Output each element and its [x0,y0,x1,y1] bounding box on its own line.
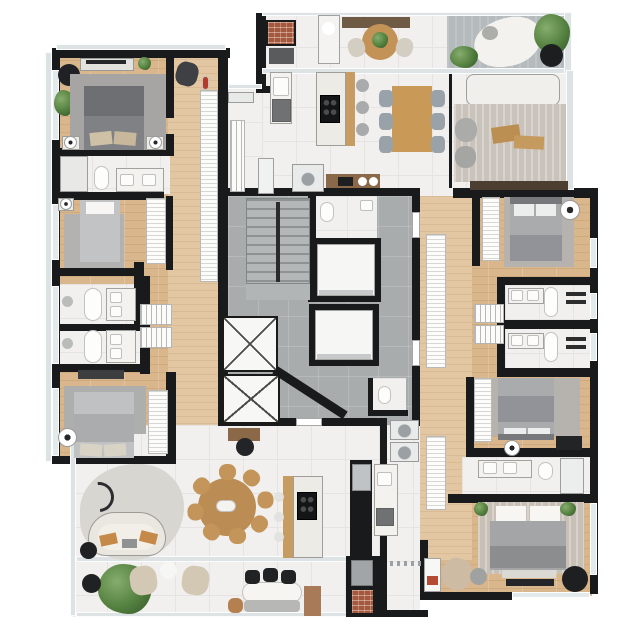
wall-segment [140,276,150,374]
fridge [352,464,371,491]
plant [450,46,478,68]
lamp [504,440,520,456]
pillow [104,443,127,457]
closet-rack [146,198,166,264]
pillow [80,443,103,457]
bathtub [84,330,102,363]
chair [431,113,445,130]
console [304,586,321,616]
lamp [60,198,72,210]
pillow [113,131,136,146]
lamp [149,136,162,149]
elevator-shaft [222,316,278,372]
elevator-car [315,310,373,360]
wall-segment [322,418,380,426]
sink [120,174,134,186]
shower-head [62,296,73,307]
sink [377,472,392,486]
chair [431,136,445,153]
plate [358,177,367,186]
towel-bar [566,337,586,341]
wall-segment [466,377,474,455]
extinguisher [202,76,209,90]
bed-throw [498,396,554,422]
washer [390,420,419,440]
window-sill [228,84,262,89]
wall-segment [372,410,408,416]
bench [502,570,556,578]
toilet [94,166,109,190]
toilet [378,386,391,404]
desk-chair [236,438,254,456]
tv [86,60,126,64]
pouf [455,118,477,142]
pillow [530,506,560,521]
sink [110,306,122,317]
island-bar [346,72,355,146]
elevator-door [319,290,373,295]
plant [372,32,388,48]
bench [244,600,300,612]
closet-rack [482,197,500,261]
bed-throw [490,546,566,568]
wall-segment [420,592,512,600]
closet-rack [200,90,218,282]
sink [527,335,539,346]
bed-throw [74,414,134,442]
chair [258,492,274,509]
stair-rail [276,202,280,282]
chair [379,136,393,153]
chair [431,90,445,107]
sink [527,290,539,301]
tv-stand [506,579,554,586]
oven [376,508,394,526]
towel-bar [566,345,586,349]
shower [60,156,88,192]
sink [110,334,122,345]
elevator-car [317,244,375,296]
plant-pot [80,542,97,559]
wall-segment [505,277,592,285]
lamp [64,136,77,149]
sink [511,335,523,346]
window [52,204,59,260]
platter [216,500,236,512]
pouf [562,566,588,592]
wall-segment [166,196,173,270]
stool [274,492,284,502]
pouf [470,568,487,585]
window [52,388,59,456]
pouf [455,146,476,168]
chair [229,528,246,544]
living-window [566,70,574,190]
bbq-grill [266,20,296,46]
bbq-grill [350,588,375,615]
stool [356,123,369,136]
sink [322,22,335,35]
window [52,286,59,364]
sink [110,348,122,359]
stair-landing [246,284,310,300]
sink [483,462,497,474]
closet-rack [148,390,168,454]
bathtub [544,332,558,362]
sink [110,292,122,303]
shoe-cabinet [474,325,504,344]
head-pillow [482,26,498,40]
nightstand [556,436,582,450]
closet-rack [426,436,446,510]
chair [263,568,278,582]
wall-segment [228,188,420,196]
floor-plan [0,0,640,640]
elevator-door [317,354,371,359]
chair [379,90,393,107]
sink [360,200,373,211]
window-sill [56,44,226,50]
chair [188,504,204,521]
stool [356,79,369,92]
stool [356,101,369,114]
closet-rack [474,378,492,442]
rug [454,104,566,182]
wall-segment [256,13,266,93]
shoe-cabinet [140,304,172,325]
chair [281,570,296,584]
sink [142,174,156,186]
window [590,238,597,268]
door [412,212,420,238]
wall-segment [505,320,592,329]
wall-segment [56,268,140,276]
sink [273,77,289,96]
door-swing-marks [390,561,422,566]
wall-segment [166,134,174,156]
wall-segment [472,196,480,266]
toilet [538,462,553,480]
pillow [496,506,526,521]
dining-table [392,86,432,152]
wall-segment [505,368,592,377]
door [296,418,322,426]
closet-rack [426,234,446,368]
wall-segment [449,73,452,188]
washer [390,442,419,462]
shower [560,458,584,494]
chair [228,598,243,613]
headboard [498,434,554,440]
window [512,592,590,598]
pillow [514,204,534,216]
cabinet-column [230,120,245,192]
stool [274,532,284,542]
shoe-cabinet [424,558,441,592]
tv-sideboard [470,181,568,190]
sink [511,290,523,301]
ac-unit [228,92,254,103]
fridge [351,560,373,586]
bar-sink [338,177,353,186]
bathtub [84,288,102,321]
window [590,293,597,319]
pillow [89,131,112,146]
shower-head [62,338,73,349]
island-bar [283,476,293,558]
side-table [160,562,177,579]
side-table [540,44,563,67]
towel-bar [566,300,586,304]
coffee-table [514,135,545,150]
chair [219,464,236,480]
terrace-balustrade [70,438,76,616]
lamp [560,200,580,220]
decor-red [427,576,438,585]
bathtub [544,287,558,317]
plate [369,177,378,186]
cabinet [258,158,274,194]
terrace-balustrade [262,12,566,16]
window [590,333,597,361]
chair [245,570,260,584]
towel-bar [566,292,586,296]
door [412,340,420,366]
bed-throw [510,235,562,261]
grill-cabinet [269,48,294,64]
shoe-cabinet [474,304,504,323]
shoe-cabinet [140,327,172,348]
washer [292,164,324,192]
pillow [536,204,556,216]
sink [503,462,517,474]
plant [138,57,151,70]
elevator-shaft [222,374,280,424]
pillow [86,202,114,214]
wall-segment [380,610,428,617]
plant [474,502,488,516]
stool [274,512,284,522]
window [590,503,597,575]
headboard [510,197,562,204]
toilet [320,202,334,222]
oven [272,99,291,122]
plant-pot [82,574,101,593]
window-sill [45,52,52,462]
chair [379,113,393,130]
console [78,370,124,379]
wall-segment [166,52,174,118]
tray [122,539,137,548]
cooktop [320,95,340,123]
cooktop [297,492,317,520]
plant [560,502,576,516]
lamp [58,428,77,447]
